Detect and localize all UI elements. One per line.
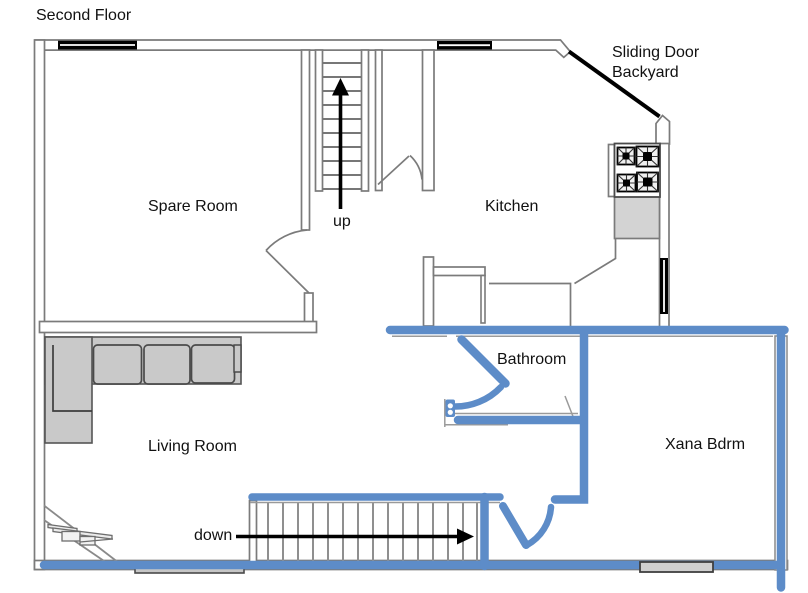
svg-text:Spare Room: Spare Room bbox=[148, 198, 238, 215]
svg-text:Living Room: Living Room bbox=[148, 438, 237, 455]
svg-text:up: up bbox=[333, 213, 351, 230]
svg-text:Second Floor: Second Floor bbox=[36, 7, 132, 24]
svg-text:Bathroom: Bathroom bbox=[497, 351, 566, 368]
svg-text:down: down bbox=[194, 527, 232, 544]
svg-text:Kitchen: Kitchen bbox=[485, 198, 538, 215]
svg-text:Backyard: Backyard bbox=[612, 64, 679, 81]
svg-text:Sliding Door: Sliding Door bbox=[612, 44, 700, 61]
svg-text:Xana Bdrm: Xana Bdrm bbox=[665, 436, 745, 453]
